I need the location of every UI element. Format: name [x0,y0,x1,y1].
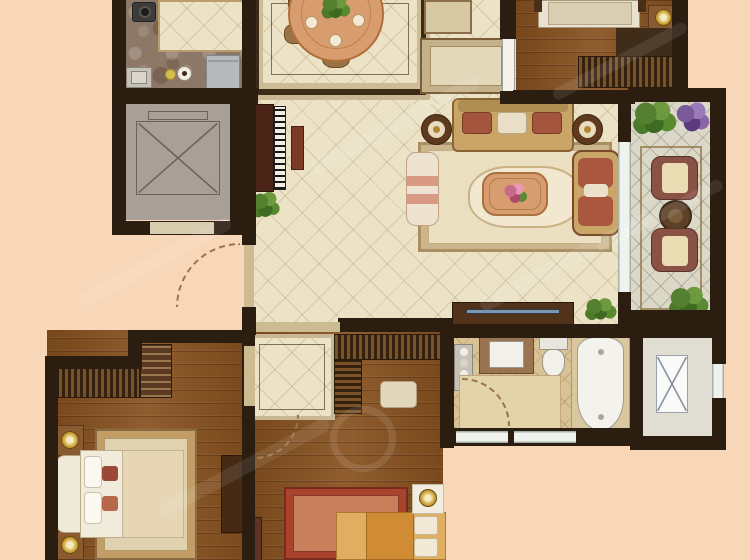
tr-bed-post [638,0,646,12]
master-lamp [61,431,79,449]
side-table-right-dot [584,126,591,133]
master-deco-pillow [102,466,118,481]
piano-body [254,104,274,192]
equipment-unit [656,355,688,413]
kitchen-sink-basin [131,71,147,84]
wall [630,324,643,446]
wall [45,356,141,369]
master-pillow [84,492,102,524]
chaise [406,152,439,226]
dining-plate [352,14,365,27]
chaise-stripe [407,194,438,204]
watermark-ring [330,406,396,472]
kitchen-bowl-yellow [165,69,176,80]
wall [710,88,726,322]
chaise-stripe [407,176,438,186]
hall-square-border [259,344,325,410]
wall [242,0,256,245]
tv-screen [466,309,560,314]
master-lamp [61,536,79,554]
dining-centerpiece-plant [321,0,351,22]
bedroom2-pillow [414,538,438,557]
elevator-cab [136,121,220,195]
wall [618,310,726,324]
balcony-plant-green [632,100,678,138]
living-corner-plant [584,298,618,322]
wall [45,356,58,560]
toilet-bowl [542,349,565,377]
wall [338,318,452,332]
wall [448,324,636,338]
master-wardrobe [58,368,140,398]
balcony-chair-cushion [662,163,688,193]
equipment-window [712,364,724,398]
dining-plate [329,34,342,47]
tr-door [502,37,515,93]
master-blanket [122,450,184,538]
refrigerator-line [208,60,238,62]
balcony-window [618,142,631,294]
wall [112,0,126,92]
bathtub-drain [598,349,604,355]
balcony-chair-cushion [662,236,688,266]
sofa-cushion-center [497,112,527,134]
bath-window [456,431,508,443]
stove-burner [139,6,151,18]
wall [128,330,254,343]
master-headboard [55,455,81,533]
wall [712,324,726,364]
wall [618,100,631,142]
entry-threshold [244,245,254,307]
bath-window [514,431,576,443]
wall [112,102,126,235]
wall [230,102,244,235]
wall [672,0,688,90]
sofa-cushion [462,112,492,134]
piano-plant [252,190,280,222]
tr-lamp [655,9,672,26]
floorplan-canvas [0,0,750,560]
sofa-cushion [532,112,562,134]
bedroom2-pillow [414,516,438,535]
master-pillow [84,456,102,488]
balcony-plant-purple [674,100,710,136]
master-shelf [140,344,172,398]
bedroom2-lamp [419,489,437,507]
elevator-panel [148,111,208,120]
bedroom2-blanket [366,512,414,560]
bathtub-drain [598,414,604,420]
dining-plate [305,16,318,29]
loveseat-cushion [578,196,613,226]
bath-basin [489,341,524,368]
master-deco-pillow [102,496,118,511]
piano-keys [274,106,286,190]
wall [712,398,726,450]
kitchen-bowl-center [182,71,187,76]
wall [500,0,516,39]
tr-bed-blanket [548,2,632,25]
coffee-table-bouquet [501,181,529,207]
foyer-mat-small [424,0,472,34]
bedroom2-wardrobe-h [334,334,446,360]
hall-threshold [244,346,255,406]
loveseat-pillow [584,184,608,197]
side-table-left-dot [433,126,440,133]
bedroom2-ottoman [380,381,417,408]
living-threshold [256,322,340,332]
tr-bed-post [534,0,542,12]
piano-bench [291,126,304,170]
kitchen-floor [158,0,250,52]
